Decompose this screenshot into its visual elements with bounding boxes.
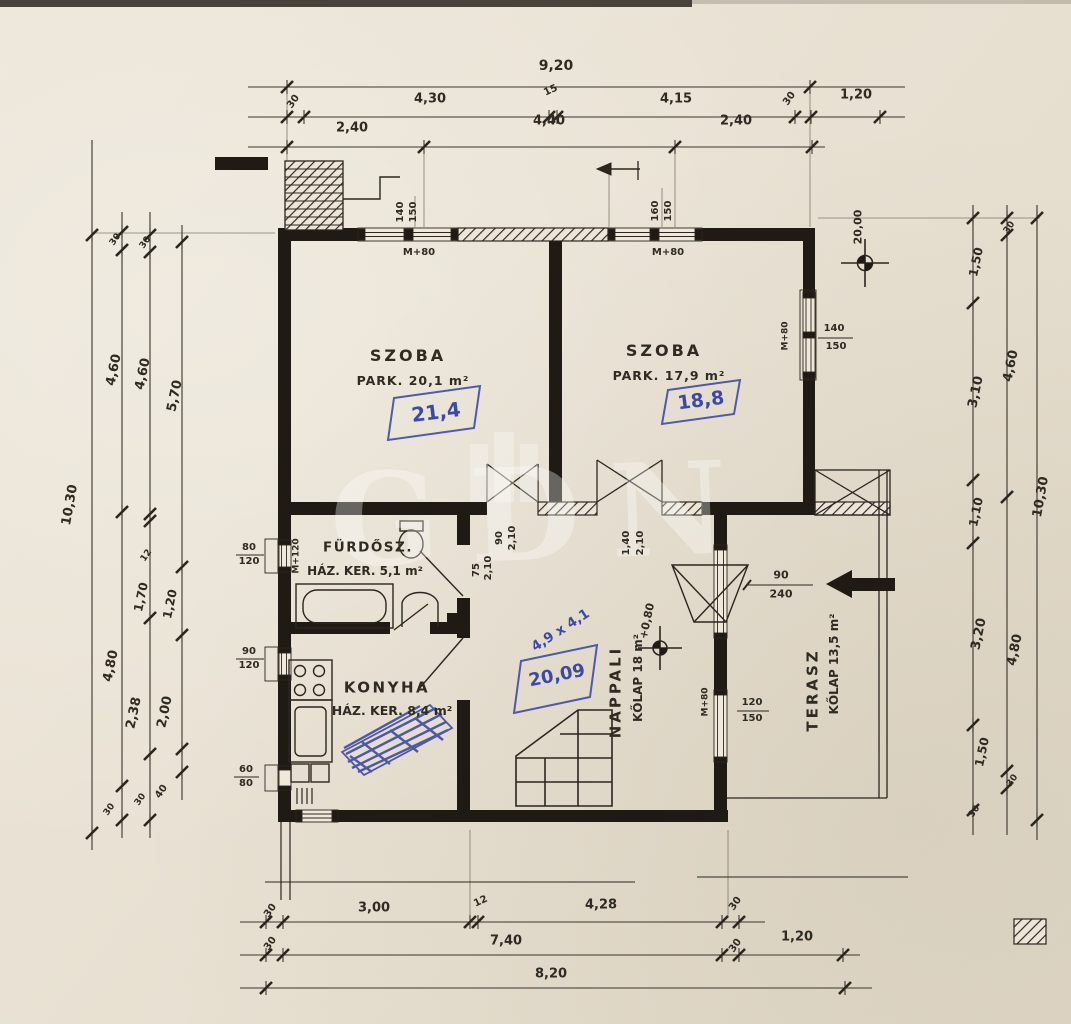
dim-label: 140	[396, 202, 406, 223]
blue-annotation-szoba1: 21,4	[410, 399, 461, 425]
dim-label: 160	[651, 201, 661, 222]
room-detail-furdoszoba: HÁZ. KER. 5,1 m²	[307, 565, 423, 577]
dim-label: 120	[239, 661, 260, 671]
dim-label: 120	[742, 698, 763, 708]
dim-label: 4,15	[660, 93, 692, 106]
dim-label: 60	[239, 765, 253, 775]
dim-label: 1,20	[840, 89, 872, 102]
dim-label: 9,20	[539, 59, 574, 73]
entrance-steps	[516, 710, 612, 806]
benchmark-site	[841, 239, 889, 287]
room-detail-nappali: KŐLAP 18 m²	[632, 634, 644, 722]
room-detail-szoba2: PARK. 17,9 m²	[613, 370, 726, 383]
room-title-furdoszoba: FÜRDŐSZ.	[323, 541, 413, 555]
scanned-floorplan-page: { "colors":{"paper":"#e9e2d4","ink":"#2b…	[0, 0, 1071, 1024]
dim-label: 90	[773, 570, 788, 581]
room-detail-szoba1: PARK. 20,1 m²	[357, 375, 470, 388]
dim-label: 150	[409, 202, 419, 223]
dim-label: 150	[664, 201, 674, 222]
room-title-szoba1: SZOBA	[370, 348, 446, 364]
dim-label: 75	[472, 563, 482, 577]
room-title-szoba2: SZOBA	[626, 343, 702, 359]
room-title-terasz: TERASZ	[806, 648, 821, 731]
dim-label: 4,30	[414, 93, 446, 106]
dim-label: 1,40	[622, 531, 632, 556]
dim-label: 90	[242, 647, 256, 657]
dim-label: 140	[824, 324, 845, 334]
dim-label: 80	[242, 543, 256, 553]
room-detail-terasz: KŐLAP 13,5 m²	[828, 614, 840, 715]
dim-label: M+80	[403, 248, 435, 258]
room-title-konyha: KONYHA	[344, 681, 430, 696]
dim-label: 2,40	[336, 122, 368, 135]
dim-label: 150	[742, 714, 763, 724]
dim-label: M+80	[782, 321, 791, 350]
room-detail-konyha: HÁZ. KER. 8,4 m²	[332, 705, 452, 718]
entrance-arrow	[826, 570, 895, 598]
dim-label: 2,40	[720, 115, 752, 128]
dim-label: 1,20	[781, 931, 813, 944]
dim-label: M+80	[652, 248, 684, 258]
dim-label: 120	[239, 557, 260, 567]
dim-label: 2,10	[484, 556, 494, 581]
legend-hatch-square	[1014, 919, 1046, 944]
dim-label: 90	[495, 531, 505, 545]
site-level-label: 20,00	[853, 210, 864, 245]
dim-label: 150	[826, 342, 847, 352]
dim-label: 7,40	[490, 935, 522, 948]
direction-arrow-top	[597, 161, 640, 180]
exterior-stairs	[285, 161, 400, 230]
dim-label: M+120	[293, 538, 302, 573]
dim-label: 4,28	[585, 899, 617, 912]
dim-label: M+80	[702, 687, 711, 716]
dim-label: 240	[770, 589, 793, 600]
kitchen-fixtures	[289, 660, 332, 804]
dim-label: 8,20	[535, 968, 567, 981]
dim-label: 4,40	[533, 115, 565, 128]
room-title-nappali: NAPPALI	[609, 646, 624, 739]
dim-label: 80	[239, 779, 253, 789]
dim-label: 2,10	[636, 531, 646, 556]
dim-label: 3,00	[358, 902, 390, 915]
dim-label: 2,10	[508, 526, 518, 551]
